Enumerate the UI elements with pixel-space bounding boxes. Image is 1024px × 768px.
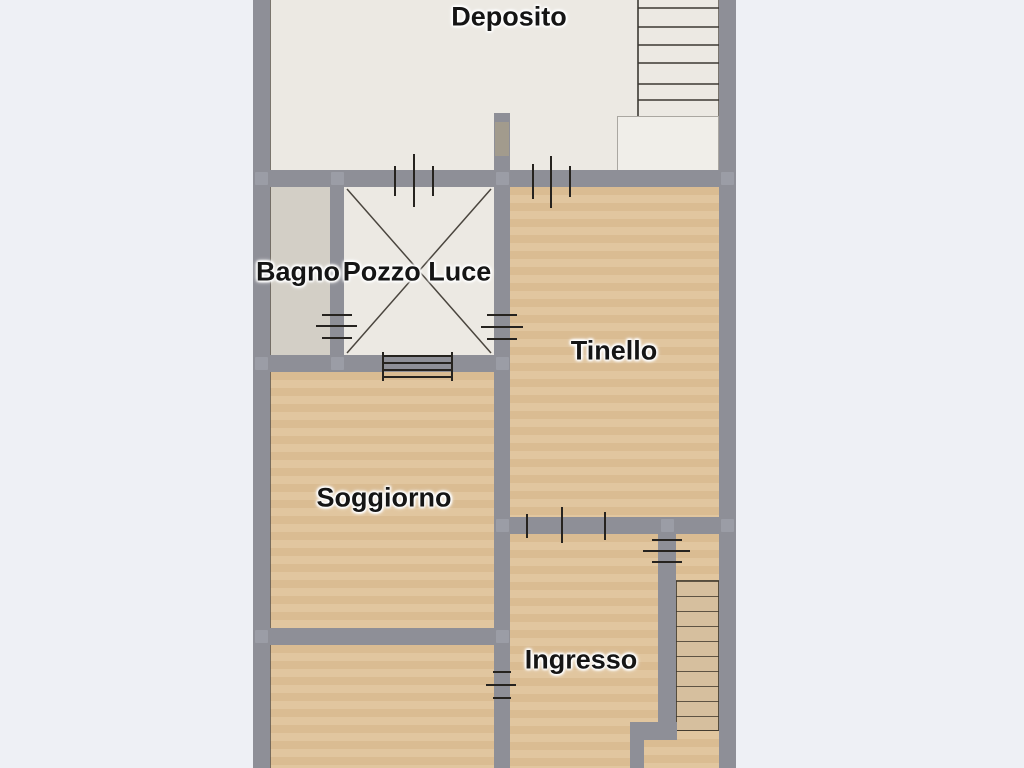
wall-h-below-bagno xyxy=(253,355,510,372)
room-label-pozzo-luce: Pozzo Luce xyxy=(343,257,492,288)
wall-v-central-spine xyxy=(494,170,510,768)
wall-h-below-tinello xyxy=(494,517,736,534)
room-bottom-left xyxy=(270,644,495,768)
room-label-bagno: Bagno xyxy=(256,257,340,288)
staircase-bottom-icon xyxy=(676,580,719,731)
wall-left xyxy=(253,0,270,768)
wall-junction xyxy=(331,357,344,370)
wall-jog-vertical xyxy=(630,740,644,768)
wall-right xyxy=(719,0,736,768)
wall-v-ingresso-stair xyxy=(658,533,676,723)
wall-junction xyxy=(721,519,734,532)
wall-jog-horizontal xyxy=(630,722,677,740)
wall-junction xyxy=(255,357,268,370)
room-label-deposito: Deposito xyxy=(451,2,567,33)
room-label-ingresso: Ingresso xyxy=(525,645,638,676)
wall-junction xyxy=(721,172,734,185)
wall-junction xyxy=(496,630,509,643)
stair-upper-landing xyxy=(675,533,720,581)
room-label-tinello: Tinello xyxy=(571,336,658,367)
wall-junction xyxy=(255,172,268,185)
wall-junction xyxy=(496,357,509,370)
room-label-soggiorno: Soggiorno xyxy=(317,483,452,514)
wall-junction xyxy=(661,519,674,532)
wall-h-below-soggiorno xyxy=(253,628,510,645)
floor-plan: Deposito Bagno Pozzo Luce Tinello Soggio… xyxy=(0,0,1024,768)
staircase-top-landing xyxy=(617,116,719,173)
wall-junction xyxy=(496,519,509,532)
wall-stub-tint xyxy=(495,122,509,156)
wall-junction xyxy=(255,630,268,643)
wall-junction xyxy=(496,172,509,185)
wall-junction xyxy=(331,172,344,185)
